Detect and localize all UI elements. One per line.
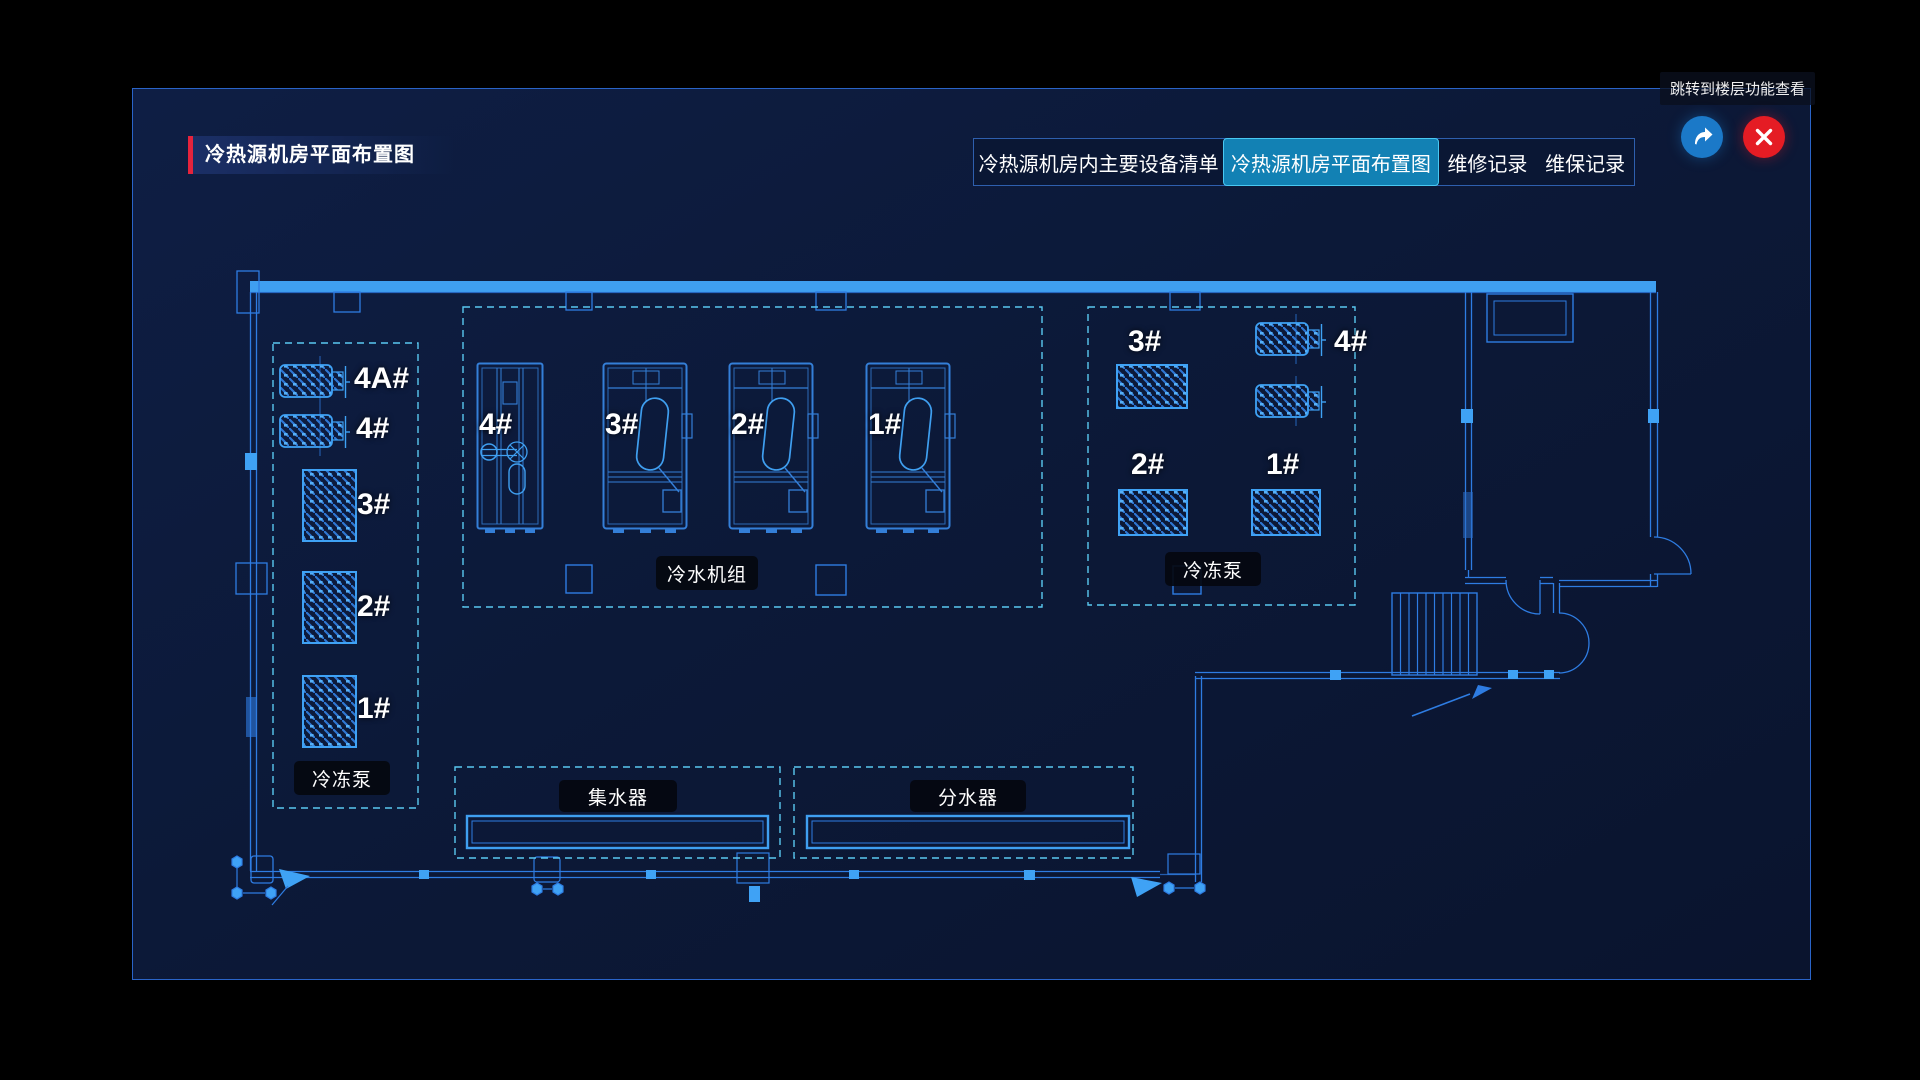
- tab-repair-records[interactable]: 维修记录: [1439, 139, 1537, 185]
- right-pump-zone-label: 冷冻泵: [1165, 552, 1261, 586]
- left-pump-label-3: 3#: [357, 490, 390, 520]
- jump-share-arrow-icon: [1689, 124, 1715, 150]
- jump-tooltip: 跳转到楼层功能查看: [1660, 72, 1815, 105]
- chiller-4: [478, 364, 543, 534]
- pump-4A: [280, 356, 350, 406]
- left-pump-label-4: 4#: [356, 414, 389, 444]
- stairs: [1392, 593, 1492, 716]
- left-pump-units: [280, 356, 356, 747]
- chiller-2: [730, 364, 819, 534]
- pump-4b: [1256, 376, 1326, 426]
- tab-maintenance-records[interactable]: 维保记录: [1536, 139, 1634, 185]
- distributor-label: 分水器: [910, 780, 1026, 812]
- close-button[interactable]: [1743, 116, 1785, 158]
- chiller-3: [604, 364, 693, 534]
- chiller-label-1: 1#: [868, 410, 901, 440]
- pump-2: [1119, 490, 1187, 535]
- pump-2: [303, 572, 356, 643]
- equipment-cabinet: [1487, 294, 1573, 342]
- pump-4: [280, 406, 350, 456]
- right-pump-label-3: 3#: [1128, 327, 1161, 357]
- right-pump-label-4: 4#: [1334, 327, 1367, 357]
- chiller-units: [478, 364, 956, 534]
- tab-equipment-list[interactable]: 冷热源机房内主要设备清单: [974, 139, 1223, 185]
- left-pump-label-1: 1#: [357, 694, 390, 724]
- chiller-label-4: 4#: [479, 410, 512, 440]
- pump-1: [1252, 490, 1320, 535]
- chiller-zone-label: 冷水机组: [656, 556, 758, 590]
- tab-floor-layout[interactable]: 冷热源机房平面布置图: [1223, 138, 1438, 186]
- left-pump-zone-label: 冷冻泵: [294, 761, 390, 795]
- door-arcs: [1506, 537, 1691, 673]
- pump-1: [303, 676, 356, 747]
- chiller-label-3: 3#: [605, 410, 638, 440]
- distributor-vessel: [807, 816, 1129, 848]
- close-x-icon: [1755, 128, 1773, 146]
- collector-label: 集水器: [559, 780, 677, 812]
- left-pump-label-4A: 4A#: [354, 364, 409, 394]
- pump-3: [1117, 365, 1187, 408]
- jump-to-floor-button[interactable]: [1681, 116, 1723, 158]
- left-pump-label-2: 2#: [357, 592, 390, 622]
- right-pump-label-1: 1#: [1266, 450, 1299, 480]
- chiller-label-2: 2#: [731, 410, 764, 440]
- pump-3: [303, 470, 356, 541]
- right-pump-label-2: 2#: [1131, 450, 1164, 480]
- page-title: 冷热源机房平面布置图: [205, 136, 415, 174]
- tab-bar: 冷热源机房内主要设备清单 冷热源机房平面布置图 维修记录 维保记录: [973, 138, 1635, 186]
- chiller-1: [867, 364, 956, 534]
- pump-4a: [1256, 314, 1326, 364]
- collector-vessel: [467, 816, 768, 848]
